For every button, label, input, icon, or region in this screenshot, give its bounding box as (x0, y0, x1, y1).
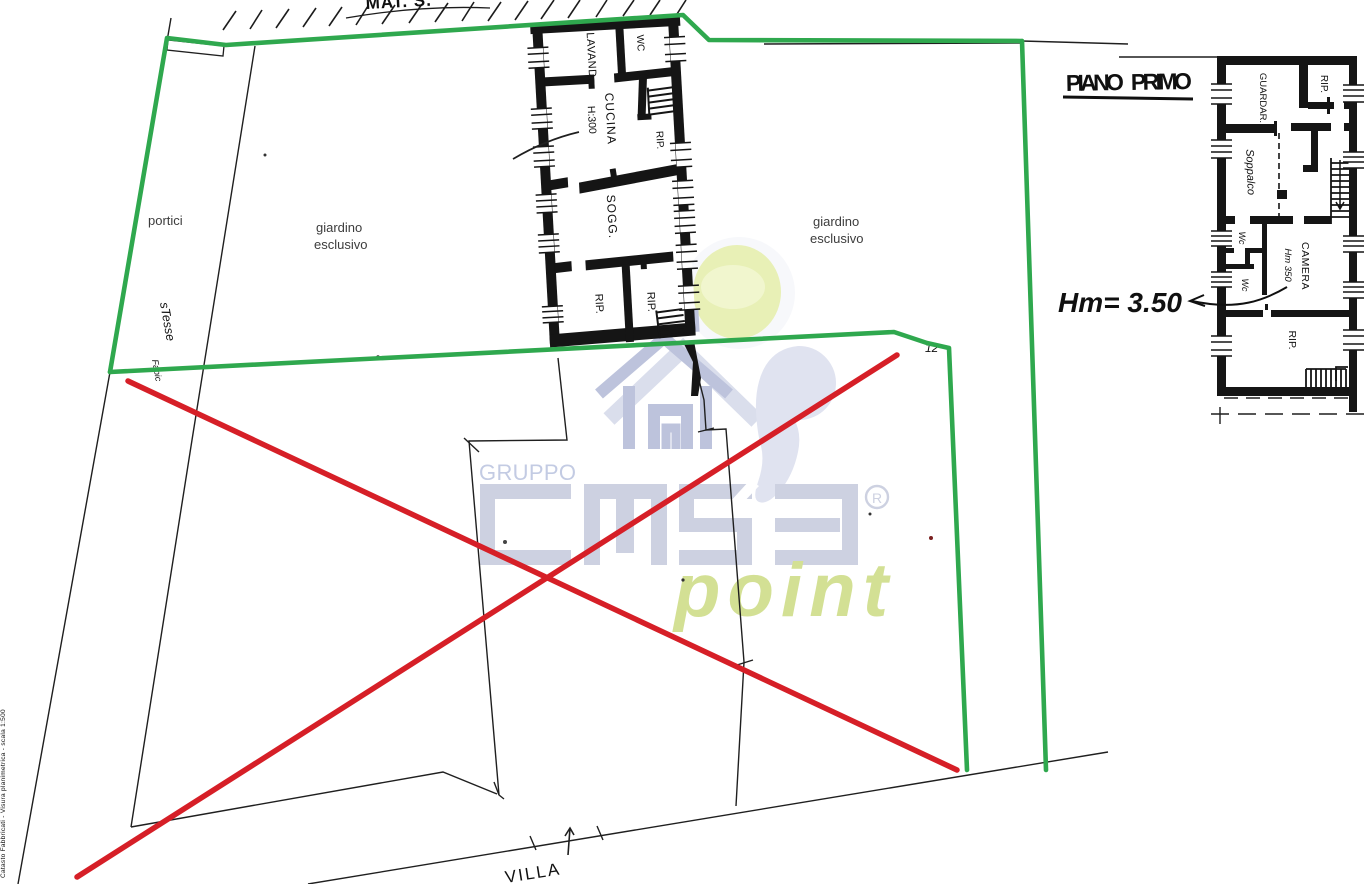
svg-text:H:300: H:300 (585, 106, 599, 135)
svg-text:giardino: giardino (316, 220, 362, 235)
svg-text:PRIMO: PRIMO (1131, 68, 1192, 95)
svg-text:giardino: giardino (813, 214, 859, 229)
svg-text:CAMERA: CAMERA (1299, 242, 1311, 290)
svg-text:Catasto Fabbricati - Visura pl: Catasto Fabbricati - Visura planimetrica… (0, 709, 7, 878)
svg-text:Soppalco: Soppalco (1243, 149, 1257, 195)
svg-text:PIANO: PIANO (1066, 69, 1124, 96)
svg-text:SOGG.: SOGG. (604, 194, 620, 239)
svg-text:R: R (872, 490, 882, 506)
svg-text:GRUPPO: GRUPPO (479, 460, 576, 485)
svg-text:CUCINA: CUCINA (602, 92, 619, 145)
svg-text:esclusivo: esclusivo (810, 231, 863, 246)
svg-text:esclusivo: esclusivo (314, 237, 367, 252)
svg-text:Wc: Wc (1240, 279, 1250, 292)
svg-text:RIP.: RIP. (1318, 75, 1329, 93)
svg-text:Wc: Wc (1237, 232, 1247, 245)
svg-text:portici: portici (148, 213, 183, 228)
svg-text:Hm= 3.50: Hm= 3.50 (1058, 287, 1182, 318)
svg-text:RIP.: RIP. (644, 291, 657, 312)
svg-text:RIP.: RIP. (653, 131, 665, 150)
svg-text:Hm 350: Hm 350 (1282, 248, 1293, 282)
svg-text:RIP.: RIP. (1286, 330, 1298, 349)
svg-text:GUARDAR.: GUARDAR. (1257, 73, 1268, 123)
svg-text:RIP.: RIP. (592, 293, 605, 314)
svg-text:WC: WC (634, 34, 646, 51)
